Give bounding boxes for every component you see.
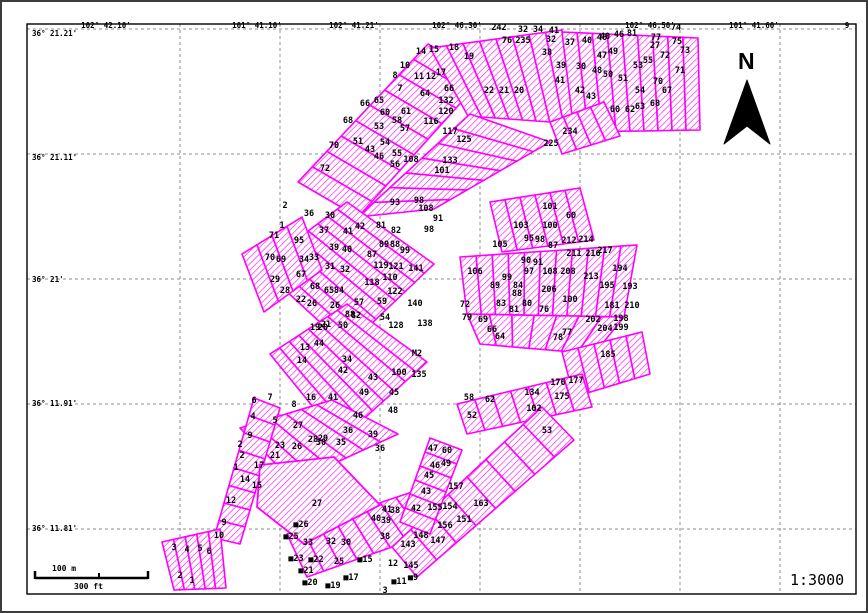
parcel-number: 54	[635, 86, 645, 96]
parcel-number: 1	[233, 463, 238, 473]
parcel-number: 213	[583, 272, 598, 282]
parcel-number: 30	[341, 538, 351, 548]
parcel-number: 125	[456, 135, 471, 145]
parcel-number: ■20	[302, 578, 317, 588]
parcel-number: 54	[380, 138, 390, 148]
parcel-number: 98	[535, 235, 545, 245]
parcel-number: 29	[270, 275, 280, 285]
parcel-number: 55	[392, 149, 402, 159]
latitude-label: 36° 21.21'	[32, 29, 77, 38]
parcel-number: 157	[448, 482, 463, 492]
parcel-number: 3	[382, 586, 387, 596]
parcel-number: 64	[420, 89, 430, 99]
parcel-number: 93	[390, 198, 400, 208]
parcel-number: 62	[625, 105, 635, 115]
parcel-number: 39	[368, 430, 378, 440]
parcel-number: ■23	[288, 554, 303, 564]
parcel-number: ■22	[308, 555, 323, 565]
parcel-number: 27	[650, 41, 660, 51]
parcel-number: 101	[542, 202, 557, 212]
parcel-number: 12	[226, 496, 236, 506]
parcel-number: 15	[429, 45, 439, 55]
parcel-number: 143	[400, 540, 415, 550]
parcel-number: 51	[618, 74, 628, 84]
parcel-number: 70	[329, 141, 339, 151]
parcel-number: 29	[318, 434, 328, 444]
parcel-number: 15	[252, 481, 262, 491]
parcel-number: 25	[334, 557, 344, 567]
parcel-number: ■15	[357, 555, 372, 565]
parcel-number: 74	[671, 23, 681, 33]
parcel-number: 6	[206, 547, 211, 557]
longitude-label: 102° 46.30'	[432, 21, 482, 30]
parcel-number: 68	[650, 99, 660, 109]
parcel-number: 177	[568, 376, 583, 386]
parcel-number: 53	[542, 426, 552, 436]
map-sheet: 102° 42.10'101° 41.10'102° 41.21'102° 46…	[0, 0, 868, 613]
parcel-number: 97	[524, 267, 534, 277]
parcel-number: 20	[514, 86, 524, 96]
parcel-number: 37	[565, 38, 575, 48]
parcel-number: 60	[380, 108, 390, 118]
parcel-number: 26	[292, 442, 302, 452]
parcel-number: ■26	[293, 520, 308, 530]
parcel-number: 1	[189, 576, 194, 586]
parcel-number: 212	[561, 236, 576, 246]
parcel-number: ■9	[408, 573, 418, 583]
parcel-number: 60	[566, 211, 576, 221]
parcel-number: 98	[424, 225, 434, 235]
longitude-label: 101° 41.60'	[729, 21, 779, 30]
parcel-number: 40	[342, 245, 352, 255]
parcel-number: 66	[360, 99, 370, 109]
parcel-number: 133	[442, 156, 457, 166]
parcel-number: 52	[467, 411, 477, 421]
parcel-number: 155	[427, 503, 442, 513]
parcel-number: 28	[280, 286, 290, 296]
parcel-number: 81	[627, 29, 637, 39]
parcel-number: 118	[364, 278, 379, 288]
parcel-number: 65	[324, 286, 334, 296]
parcel-number: 18	[449, 43, 459, 53]
parcel-number: 48	[592, 66, 602, 76]
parcel-number: 46	[614, 30, 624, 40]
parcel-number: 19	[464, 52, 474, 62]
parcel-number: 217	[597, 246, 612, 256]
longitude-label: 9	[845, 21, 850, 30]
parcel-number: 2	[177, 571, 182, 581]
parcel-number: 77	[562, 328, 572, 338]
parcel-number: 32	[340, 265, 350, 275]
parcel-number: 175	[554, 392, 569, 402]
parcel-number: 42	[338, 366, 348, 376]
parcel-number: 99	[400, 246, 410, 256]
parcel-number: 16	[306, 393, 316, 403]
parcel-number: 193	[622, 282, 637, 292]
parcel-number: 34	[299, 255, 309, 265]
map-plot: 102° 42.10'101° 41.10'102° 41.21'102° 46…	[2, 2, 868, 613]
parcel-number: 38	[390, 506, 400, 516]
parcel-number: 11	[414, 72, 424, 82]
parcel-number: 79	[462, 313, 472, 323]
parcel-number: 87	[367, 250, 377, 260]
north-label: N	[738, 48, 756, 75]
parcel-number: 140	[407, 299, 422, 309]
longitude-label: 102° 41.21'	[329, 21, 379, 30]
parcel-number: 75	[672, 37, 682, 47]
parcel-number: 14	[416, 47, 426, 57]
parcel-number: 89	[379, 240, 389, 250]
parcel-number: 82	[391, 226, 401, 236]
parcel-number: 76	[502, 36, 512, 46]
parcel-number: 47	[597, 51, 607, 61]
parcel-number: 67	[662, 86, 672, 96]
parcel-number: 5	[197, 544, 202, 554]
parcel-number: 2	[239, 451, 244, 461]
parcel-number: 105	[492, 240, 507, 250]
parcel-number: 194	[612, 264, 627, 274]
parcel-number: 148	[413, 531, 428, 541]
parcel-number: 225	[543, 139, 558, 149]
parcel-number: 71	[675, 66, 685, 76]
parcel-number: 156	[437, 521, 452, 531]
parcel-number: 60	[442, 446, 452, 456]
parcel-number: 2	[237, 440, 242, 450]
parcel-number: 69	[478, 315, 488, 325]
parcel-number: 30	[325, 211, 335, 221]
parcel-number: 49	[608, 47, 618, 57]
parcel-number: 55	[643, 56, 653, 66]
parcel-number: 41	[328, 393, 338, 403]
parcel-number: 32	[546, 35, 556, 45]
parcel-number: 26	[330, 301, 340, 311]
parcel-number: 46	[374, 152, 384, 162]
parcel-number: 45	[424, 471, 434, 481]
parcel-number: 34	[533, 25, 543, 35]
parcel-number: 235	[515, 36, 530, 46]
latitude-label: 36° 11.91'	[32, 399, 77, 408]
parcel-number: 6	[251, 396, 256, 406]
parcel-number: 57	[400, 124, 410, 134]
parcel-number: 39	[381, 516, 391, 526]
parcel-number: 100	[391, 368, 406, 378]
parcel-number: 4	[250, 412, 255, 422]
longitude-label: 101° 41.10'	[232, 21, 282, 30]
parcel-number: 234	[562, 127, 577, 137]
parcel-number: 41	[343, 227, 353, 237]
parcel-number: 36	[375, 444, 385, 454]
parcel-number: 121	[388, 262, 403, 272]
parcel-number: 68	[310, 282, 320, 292]
parcel-number: 120	[438, 107, 453, 117]
parcel-number: 211	[566, 249, 581, 259]
parcel-number: 10	[400, 61, 410, 71]
longitude-label: 102° 42.10'	[81, 21, 131, 30]
parcel-number: 103	[513, 221, 528, 231]
parcel-number: 73	[680, 46, 690, 56]
parcel-number: 30	[576, 62, 586, 72]
parcel-number: 38	[542, 48, 552, 58]
parcel-number: 9	[221, 518, 226, 528]
latitude-label: 36° 21.11'	[32, 153, 77, 162]
parcel-number: 9	[247, 431, 252, 441]
parcel-number: 50	[603, 70, 613, 80]
parcel-number: 10	[214, 531, 224, 541]
parcel-number: 46	[353, 411, 363, 421]
parcel-number: 138	[417, 319, 432, 329]
parcel-number: 176	[550, 378, 565, 388]
parcel-number: 80	[522, 299, 532, 309]
parcel-number: 2	[282, 201, 287, 211]
parcel-number: 43	[586, 92, 596, 102]
parcel-number: 69	[276, 255, 286, 265]
parcel-number: 99	[502, 273, 512, 283]
parcel-number: 7	[267, 393, 272, 403]
parcel-number: ■19	[325, 581, 340, 591]
parcel-number: 44	[314, 339, 324, 349]
parcel-number: 13	[300, 343, 310, 353]
parcel-number: 36	[343, 426, 353, 436]
parcel-number: 14	[240, 475, 250, 485]
parcel-number: 214	[578, 235, 593, 245]
parcel-number: 242	[491, 23, 506, 33]
parcel-number: 116	[423, 117, 438, 127]
parcel-number: 51	[353, 137, 363, 147]
parcel-number: 50	[338, 321, 348, 331]
parcel-number: 82	[351, 311, 361, 321]
parcel-number: 62	[485, 395, 495, 405]
parcel-number: 39	[556, 61, 566, 71]
parcel-number: 33	[309, 253, 319, 263]
parcel-number: 4	[184, 545, 189, 555]
parcel-number: 70	[265, 253, 275, 263]
parcel-number: 5	[272, 416, 277, 426]
parcel-number: 134	[524, 388, 539, 398]
parcel-number: 119	[373, 261, 388, 271]
parcel-number: 89	[490, 281, 500, 291]
north-arrow-icon	[724, 80, 770, 144]
parcel-number: 47	[428, 444, 438, 454]
parcel-number: 40	[371, 514, 381, 524]
parcel-number: 35	[336, 438, 346, 448]
parcel-number: 56	[390, 160, 400, 170]
parcel-number: 208	[560, 267, 575, 277]
parcel-number: 27	[312, 499, 322, 509]
parcel-number: 81	[509, 305, 519, 315]
parcel-number: 66	[444, 84, 454, 94]
parcel-number: 100	[542, 221, 557, 231]
parcel-number: 33	[303, 538, 313, 548]
parcel-number: 20	[318, 323, 328, 333]
parcel-number: 34	[342, 355, 352, 365]
parcel-number: 21	[499, 86, 509, 96]
parcel-number: 110	[382, 273, 397, 283]
parcel-number: 65	[374, 96, 384, 106]
parcel-number: 108	[418, 204, 433, 214]
scalebar-imperial-label: 300 ft	[74, 582, 103, 591]
parcel-number: 195	[599, 281, 614, 291]
parcel-number: 76	[539, 305, 549, 315]
parcel-number: 58	[464, 393, 474, 403]
parcel-number: 61	[401, 107, 411, 117]
parcel-number: 46	[597, 33, 607, 43]
parcel-number: 27	[293, 421, 303, 431]
parcel-number: 185	[600, 350, 615, 360]
parcel-number: 88	[390, 240, 400, 250]
parcel-number: ■11	[391, 577, 406, 587]
parcel-number: 43	[421, 487, 431, 497]
parcel-number: 1	[279, 221, 284, 231]
parcel-number: 147	[430, 536, 445, 546]
parcel-number: 59	[377, 297, 387, 307]
parcel-number: 87	[548, 241, 558, 251]
parcel-number: 17	[254, 461, 264, 471]
parcel-number: 32	[518, 25, 528, 35]
parcel-number: 122	[387, 287, 402, 297]
latitude-label: 36° 11.81'	[32, 524, 77, 533]
parcel-number: 84	[334, 286, 344, 296]
parcel-number: 48	[388, 406, 398, 416]
parcel-number: 206	[541, 285, 556, 295]
parcel-number: ■21	[298, 566, 313, 576]
parcel-number: 32	[326, 537, 336, 547]
parcel-number: 132	[438, 96, 453, 106]
parcel-number: 67	[296, 270, 306, 280]
parcel-number: 204	[597, 324, 612, 334]
parcel-number: 60	[610, 105, 620, 115]
parcel-number: 17	[436, 68, 446, 78]
parcel-number: M2	[412, 349, 422, 359]
parcel-number: 90	[521, 256, 531, 266]
parcel-number: 37	[319, 226, 329, 236]
parcel-number: 210	[624, 301, 639, 311]
parcel-number: 8	[392, 71, 397, 81]
parcel-number: ■25	[283, 532, 298, 542]
parcel-number: 95	[294, 236, 304, 246]
scalebar-metric-label: 100 m	[52, 564, 76, 573]
parcel-number: 53	[374, 122, 384, 132]
parcel-number: 49	[441, 459, 451, 469]
parcel-number: 81	[376, 221, 386, 231]
parcel-number: 42	[411, 504, 421, 514]
parcel-number: 145	[403, 561, 418, 571]
parcel-number: 83	[496, 299, 506, 309]
parcel-number: ■17	[343, 573, 358, 583]
parcel-number: 53	[633, 61, 643, 71]
parcel-number: 22	[296, 295, 306, 305]
parcel-number: 23	[275, 441, 285, 451]
parcel-number: 26	[307, 299, 317, 309]
parcel-number: 3	[171, 543, 176, 553]
parcel-number: 128	[388, 321, 403, 331]
parcel-number: 49	[359, 388, 369, 398]
parcel-number: 68	[343, 116, 353, 126]
parcel-number: 199	[613, 323, 628, 333]
parcel-number: 95	[524, 234, 534, 244]
parcel-number: 8	[291, 400, 296, 410]
parcel-number: 101	[434, 166, 449, 176]
parcel-number: 108	[403, 155, 418, 165]
parcel-number: 43	[368, 373, 378, 383]
parcel-number: 141	[408, 264, 423, 274]
parcel-number: 72	[660, 51, 670, 61]
parcel-number: 28	[308, 435, 318, 445]
parcel-number: 72	[320, 164, 330, 174]
parcel-number: 36	[304, 209, 314, 219]
parcel-number: 100	[562, 295, 577, 305]
parcel-number: 63	[635, 102, 645, 112]
parcel-number: 12	[426, 72, 436, 82]
scale-ratio-text: 1:3000	[790, 571, 844, 589]
parcel-number: 39	[329, 243, 339, 253]
parcel-number: 42	[575, 86, 585, 96]
parcel-number: 46	[430, 461, 440, 471]
parcel-number: 181	[604, 301, 619, 311]
parcel-number: 91	[433, 214, 443, 224]
parcel-number: 135	[411, 370, 426, 380]
parcel-number: 38	[380, 532, 390, 542]
parcel-number: 42	[355, 222, 365, 232]
parcel-number: 12	[388, 559, 398, 569]
parcel-number: 163	[473, 499, 488, 509]
parcel-number: 21	[270, 451, 280, 461]
parcel-number: 71	[269, 231, 279, 241]
parcel-number: 57	[354, 298, 364, 308]
parcel-number: 7	[397, 84, 402, 94]
parcel-number: 40	[582, 36, 592, 46]
parcel-number: 41	[555, 76, 565, 86]
parcel-number: 154	[442, 502, 457, 512]
parcel-number: 45	[389, 388, 399, 398]
parcel-number: 72	[460, 300, 470, 310]
parcel-number: 14	[297, 356, 307, 366]
parcel-number: 106	[467, 267, 482, 277]
parcel-number: 31	[325, 262, 335, 272]
parcel-number: 88	[512, 289, 522, 299]
parcel-number: 151	[456, 515, 471, 525]
parcel-number: 102	[526, 404, 541, 414]
latitude-label: 36° 21'	[32, 275, 64, 284]
parcel-number: 64	[495, 332, 505, 342]
parcel-number: 108	[542, 267, 557, 277]
parcel-number: 22	[484, 86, 494, 96]
